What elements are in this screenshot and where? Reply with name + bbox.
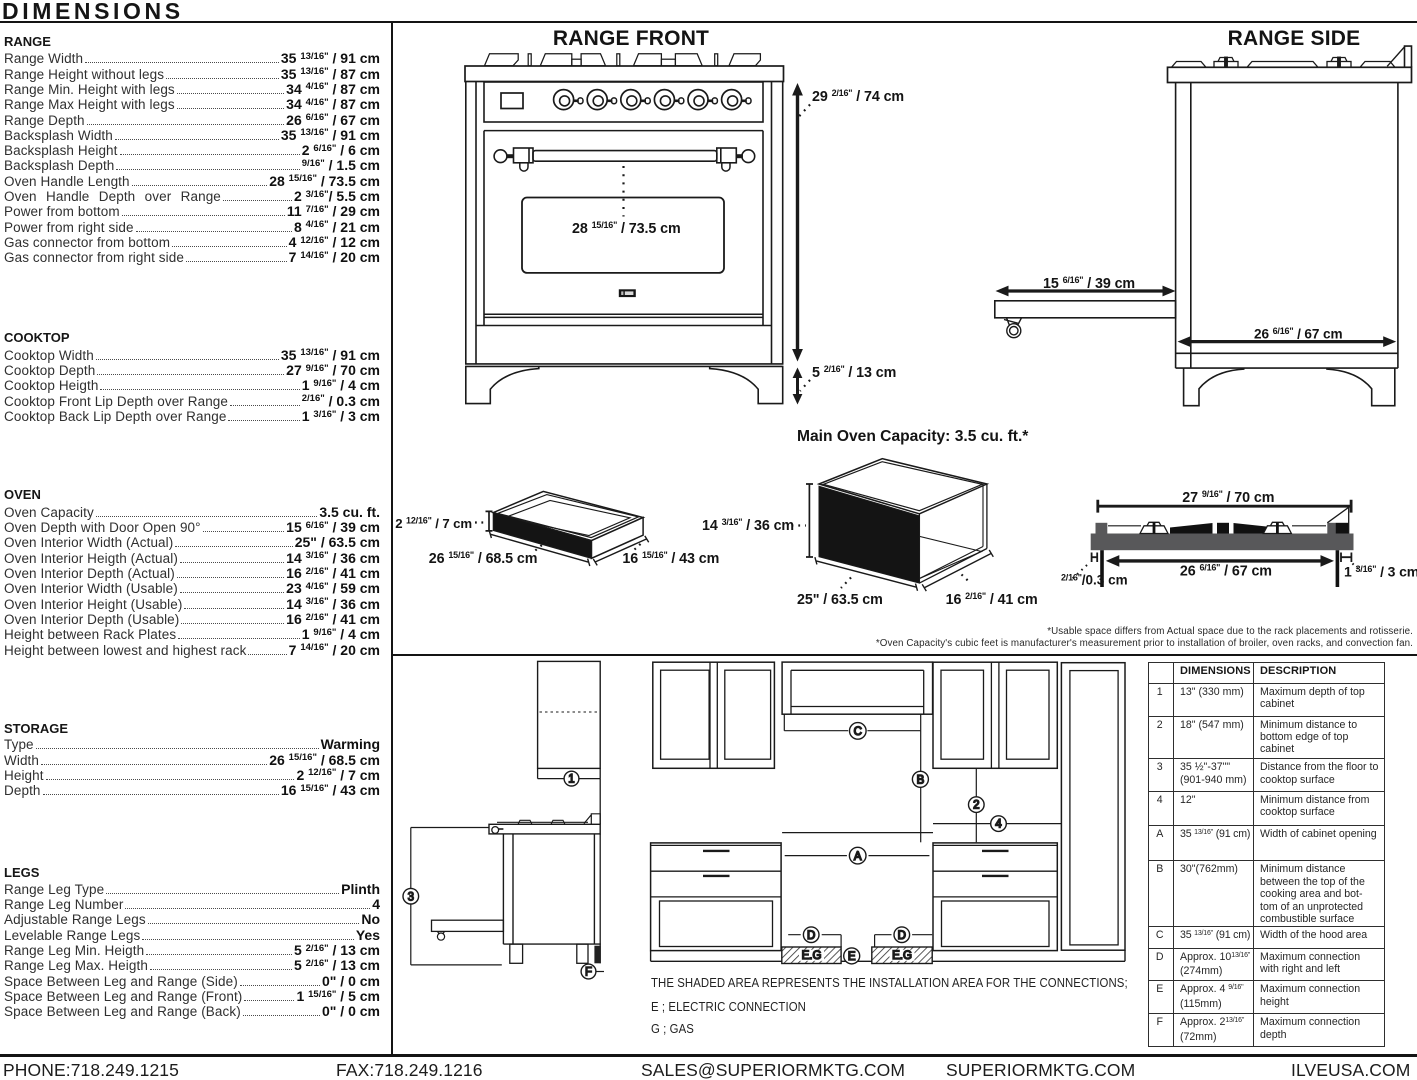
svg-text:D: D: [807, 930, 815, 942]
svg-text:A: A: [854, 851, 862, 863]
svg-text:2: 2: [973, 800, 979, 812]
svg-text:E.G: E.G: [802, 950, 822, 962]
svg-text:4: 4: [995, 819, 1002, 831]
svg-text:C: C: [854, 726, 862, 738]
svg-text:14 3/16" / 36 cm: 14 3/16" / 36 cm: [702, 517, 794, 534]
svg-text:1: 1: [568, 774, 574, 786]
svg-text:26 6/16" / 67 cm: 26 6/16" / 67 cm: [1180, 563, 1272, 580]
svg-text:26 15/16" / 68.5 cm: 26 15/16" / 68.5 cm: [429, 550, 538, 567]
svg-text:29 2/16" / 74 cm: 29 2/16" / 74 cm: [812, 88, 904, 105]
svg-text:27 9/16" / 70 cm: 27 9/16" / 70 cm: [1182, 489, 1274, 506]
svg-text:2 12/16" / 7 cm: 2 12/16" / 7 cm: [395, 516, 472, 532]
svg-text:28 15/16" / 73.5 cm: 28 15/16" / 73.5 cm: [572, 220, 681, 237]
svg-text:E: E: [848, 951, 856, 963]
svg-text:E.G: E.G: [892, 950, 912, 962]
svg-text:F: F: [585, 967, 592, 979]
svg-text:B: B: [917, 774, 925, 786]
svg-text:D: D: [898, 930, 906, 942]
svg-text:5 2/16" / 13 cm: 5 2/16" / 13 cm: [812, 364, 896, 381]
svg-text:2/16"/0.3 cm: 2/16"/0.3 cm: [1061, 573, 1128, 588]
svg-text:1 3/16" / 3 cm: 1 3/16" / 3 cm: [1344, 564, 1417, 580]
svg-text:3: 3: [408, 891, 414, 903]
svg-text:25" / 63.5 cm: 25" / 63.5 cm: [797, 592, 883, 608]
svg-text:16 2/16" / 41 cm: 16 2/16" / 41 cm: [946, 591, 1038, 608]
svg-text:15 6/16" / 39 cm: 15 6/16" / 39 cm: [1043, 275, 1135, 292]
svg-text:26 6/16" / 67 cm: 26 6/16" / 67 cm: [1254, 326, 1342, 342]
